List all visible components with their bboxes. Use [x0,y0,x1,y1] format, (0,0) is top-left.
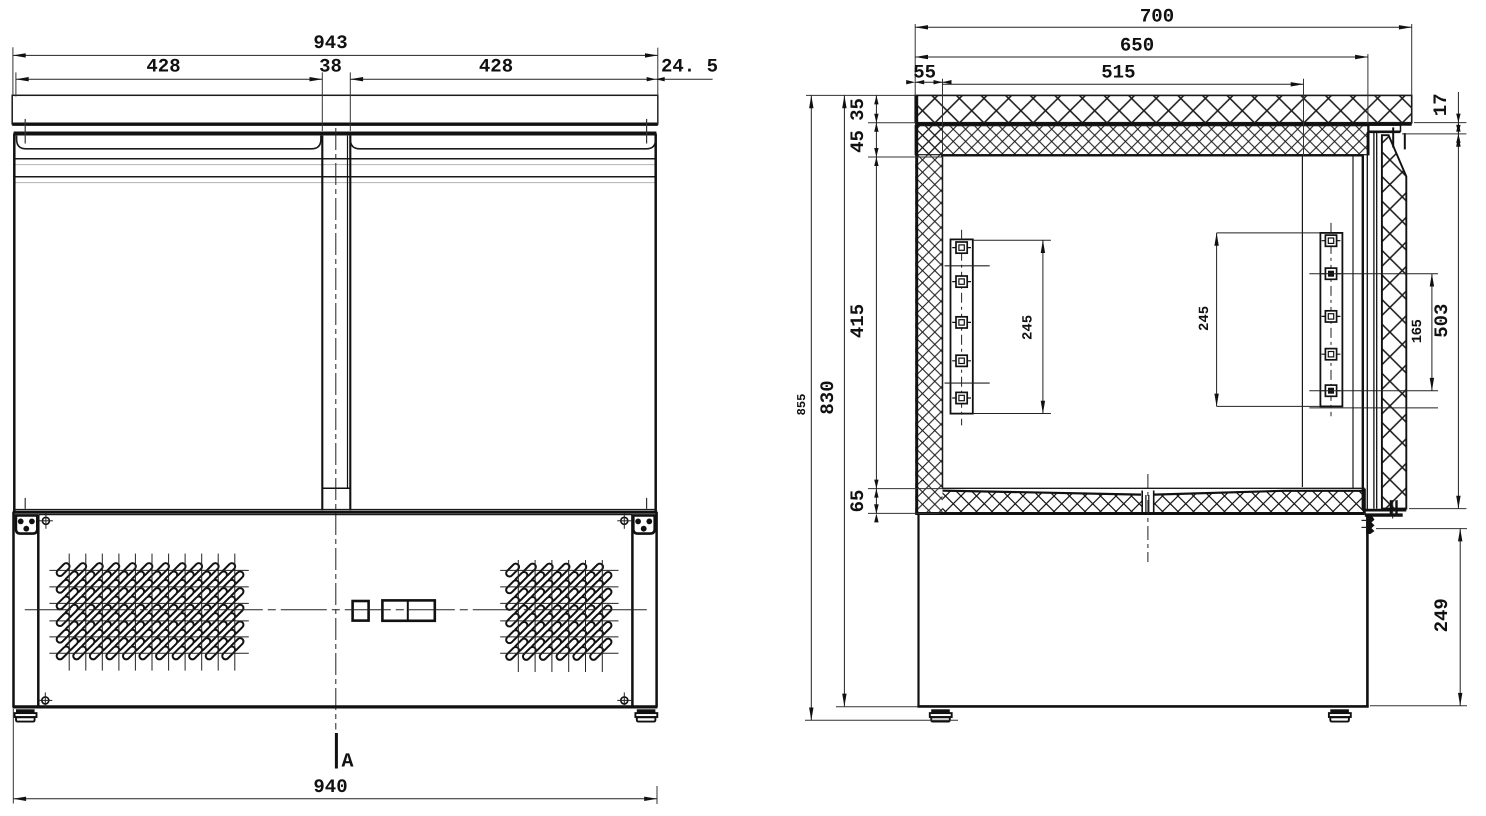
svg-text:245: 245 [1197,306,1213,331]
svg-text:55: 55 [913,62,936,84]
svg-text:428: 428 [146,56,180,78]
svg-text:855: 855 [795,394,809,416]
svg-text:24. 5: 24. 5 [661,56,718,78]
svg-text:245: 245 [1021,315,1037,340]
svg-text:700: 700 [1140,6,1174,28]
svg-text:650: 650 [1120,35,1154,57]
svg-text:428: 428 [479,56,513,78]
svg-text:165: 165 [1410,319,1426,343]
svg-text:249: 249 [1431,598,1453,632]
svg-text:943: 943 [313,32,347,54]
svg-text:415: 415 [847,304,869,338]
svg-text:38: 38 [319,56,342,78]
svg-text:35: 35 [847,98,869,121]
svg-text:515: 515 [1101,62,1135,84]
svg-text:503: 503 [1431,304,1453,338]
svg-text:A: A [342,751,354,774]
svg-text:940: 940 [313,776,347,798]
svg-text:65: 65 [847,490,869,513]
svg-text:45: 45 [847,130,869,153]
svg-text:830: 830 [817,380,839,414]
svg-text:17: 17 [1430,93,1452,116]
